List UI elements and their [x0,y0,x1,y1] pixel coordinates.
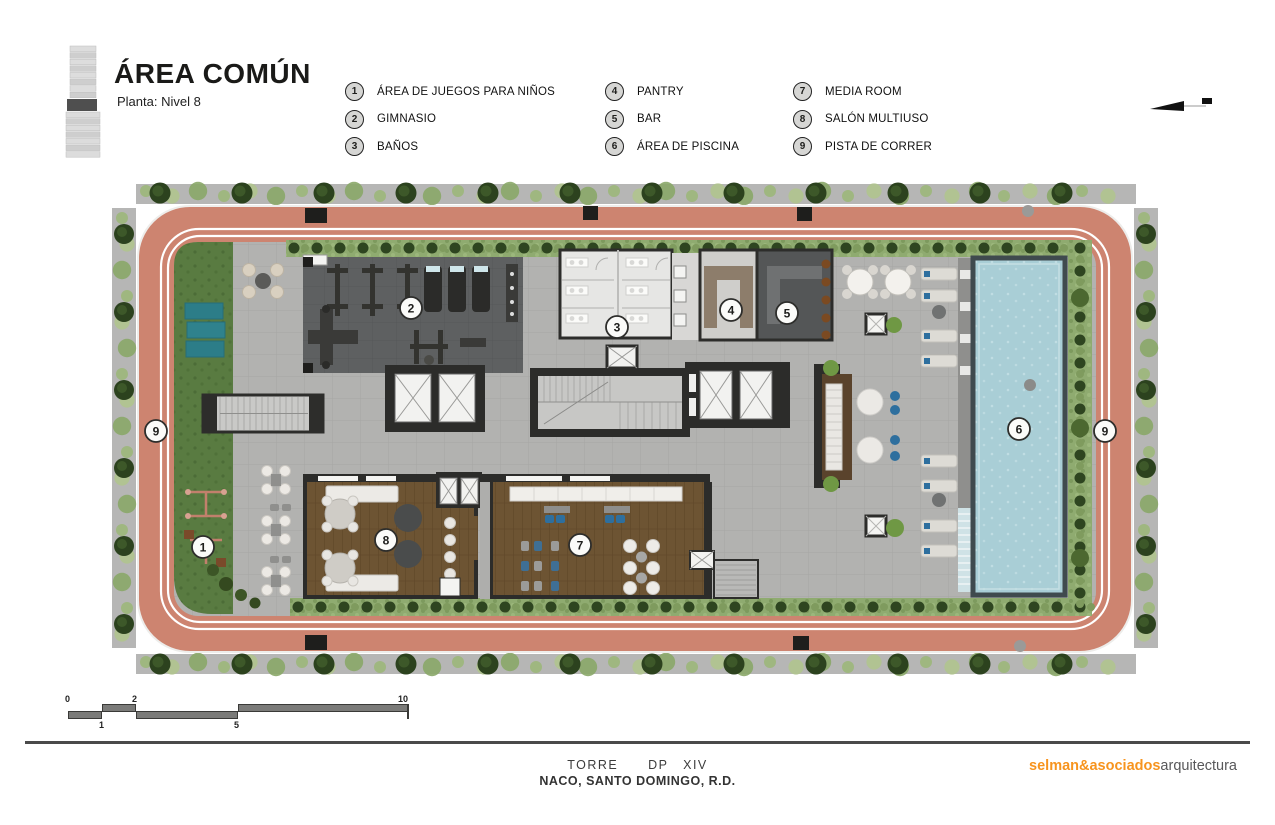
project-location: NACO, SANTO DOMINGO, R.D. [0,774,1275,788]
floor-plan-rendering: 1234567899 [108,178,1168,678]
scale-segment [238,704,408,712]
svg-text:8: 8 [383,534,390,548]
legend-item-2: 2GIMNASIO [345,106,555,134]
scale-label-10: 10 [398,694,408,704]
firm-logo-bold: selman&asociados [1029,758,1160,774]
svg-text:3: 3 [614,321,621,335]
scale-segment [102,704,136,712]
svg-text:9: 9 [153,425,160,439]
legend-label: ÁREA DE PISCINA [637,141,739,153]
highlighted-level-8 [67,99,97,111]
legend-number-badge: 8 [793,110,812,129]
plan-badge-9: 9 [145,420,167,442]
svg-text:2: 2 [408,302,415,316]
plan-badge-1: 1 [192,536,214,558]
plan-badge-9: 9 [1094,420,1116,442]
pantry-zone [700,250,757,340]
plan-badge-7: 7 [569,534,591,556]
legend-number-badge: 6 [605,137,624,156]
building-level-icon [64,44,102,162]
legend-item-8: 8SALÓN MULTIUSO [793,106,932,134]
stair-bottom [714,560,758,598]
scale-end-tick [407,704,409,719]
legend-label: GIMNASIO [377,113,436,125]
scale-label-5: 5 [234,720,239,730]
firm-logo-light: arquitectura [1160,758,1237,774]
bar-zone [757,250,832,340]
scale-label-2: 2 [132,694,137,704]
plan-badge-6: 6 [1008,418,1030,440]
legend-column-1: 1ÁREA DE JUEGOS PARA NIÑOS2GIMNASIO3BAÑO… [345,78,555,161]
north-arrow-icon [1148,94,1218,118]
legend-item-1: 1ÁREA DE JUEGOS PARA NIÑOS [345,78,555,106]
plan-badge-5: 5 [776,302,798,324]
page-subtitle: Planta: Nivel 8 [117,94,201,109]
legend-label: BAÑOS [377,141,418,153]
plan-badge-4: 4 [720,299,742,321]
svg-text:4: 4 [728,304,735,318]
legend-item-5: 5BAR [605,106,739,134]
stair-left [203,395,323,432]
floor-plan-sheet: ÁREA COMÚN Planta: Nivel 8 1ÁREA DE JUEG… [0,0,1275,825]
legend-number-badge: 1 [345,82,364,101]
scale-segment [68,711,102,719]
elevator-core-right [685,362,790,428]
legend-item-3: 3BAÑOS [345,133,555,161]
plan-badge-8: 8 [375,529,397,551]
plan-badge-3: 3 [606,316,628,338]
legend-number-badge: 7 [793,82,812,101]
rooms-wall-band [303,474,710,482]
legend-column-3: 7MEDIA ROOM8SALÓN MULTIUSO9PISTA DE CORR… [793,78,932,161]
scale-bar: 021015 [68,696,414,730]
svg-text:6: 6 [1016,423,1023,437]
legend-label: PISTA DE CORRER [825,141,932,153]
legend-label: BAR [637,113,661,125]
legend-number-badge: 9 [793,137,812,156]
legend-label: MEDIA ROOM [825,86,902,98]
media-room [490,482,714,599]
firm-logo: selman&asociadosarquitectura [1029,758,1237,774]
footer-divider [25,741,1250,744]
svg-text:5: 5 [784,307,791,321]
scale-label-1: 1 [99,720,104,730]
svg-text:7: 7 [577,539,584,553]
legend-label: ÁREA DE JUEGOS PARA NIÑOS [377,86,555,98]
svg-text:9: 9 [1102,425,1109,439]
legend-label: SALÓN MULTIUSO [825,113,929,125]
legend-item-6: 6ÁREA DE PISCINA [605,133,739,161]
service-corridor [672,253,700,340]
plan-badge-2: 2 [400,297,422,319]
legend-number-badge: 3 [345,137,364,156]
scale-label-0: 0 [65,694,70,704]
legend-number-badge: 5 [605,110,624,129]
page-title: ÁREA COMÚN [114,58,311,90]
elevator-core-left [385,365,485,432]
legend-number-badge: 4 [605,82,624,101]
svg-text:1: 1 [200,541,207,555]
legend-column-2: 4PANTRY5BAR6ÁREA DE PISCINA [605,78,739,161]
legend-item-9: 9PISTA DE CORRER [793,133,932,161]
legend-label: PANTRY [637,86,684,98]
legend-item-7: 7MEDIA ROOM [793,78,932,106]
legend-item-4: 4PANTRY [605,78,739,106]
legend-number-badge: 2 [345,110,364,129]
scale-segment [136,711,238,719]
rooms-corridor [480,482,490,599]
